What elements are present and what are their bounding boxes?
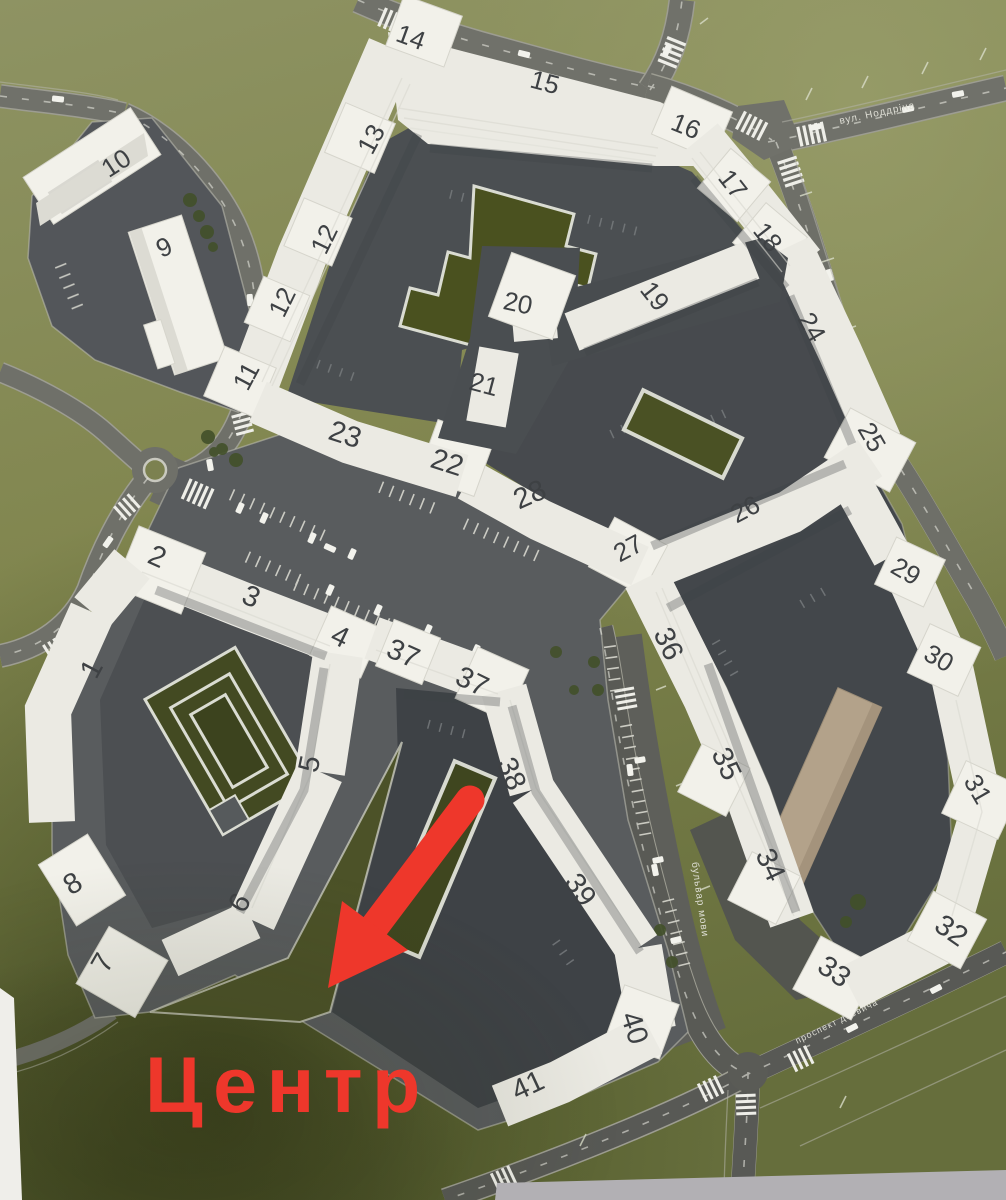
svg-text:20: 20 [501, 285, 536, 320]
svg-text:Центр: Центр [145, 1040, 430, 1129]
